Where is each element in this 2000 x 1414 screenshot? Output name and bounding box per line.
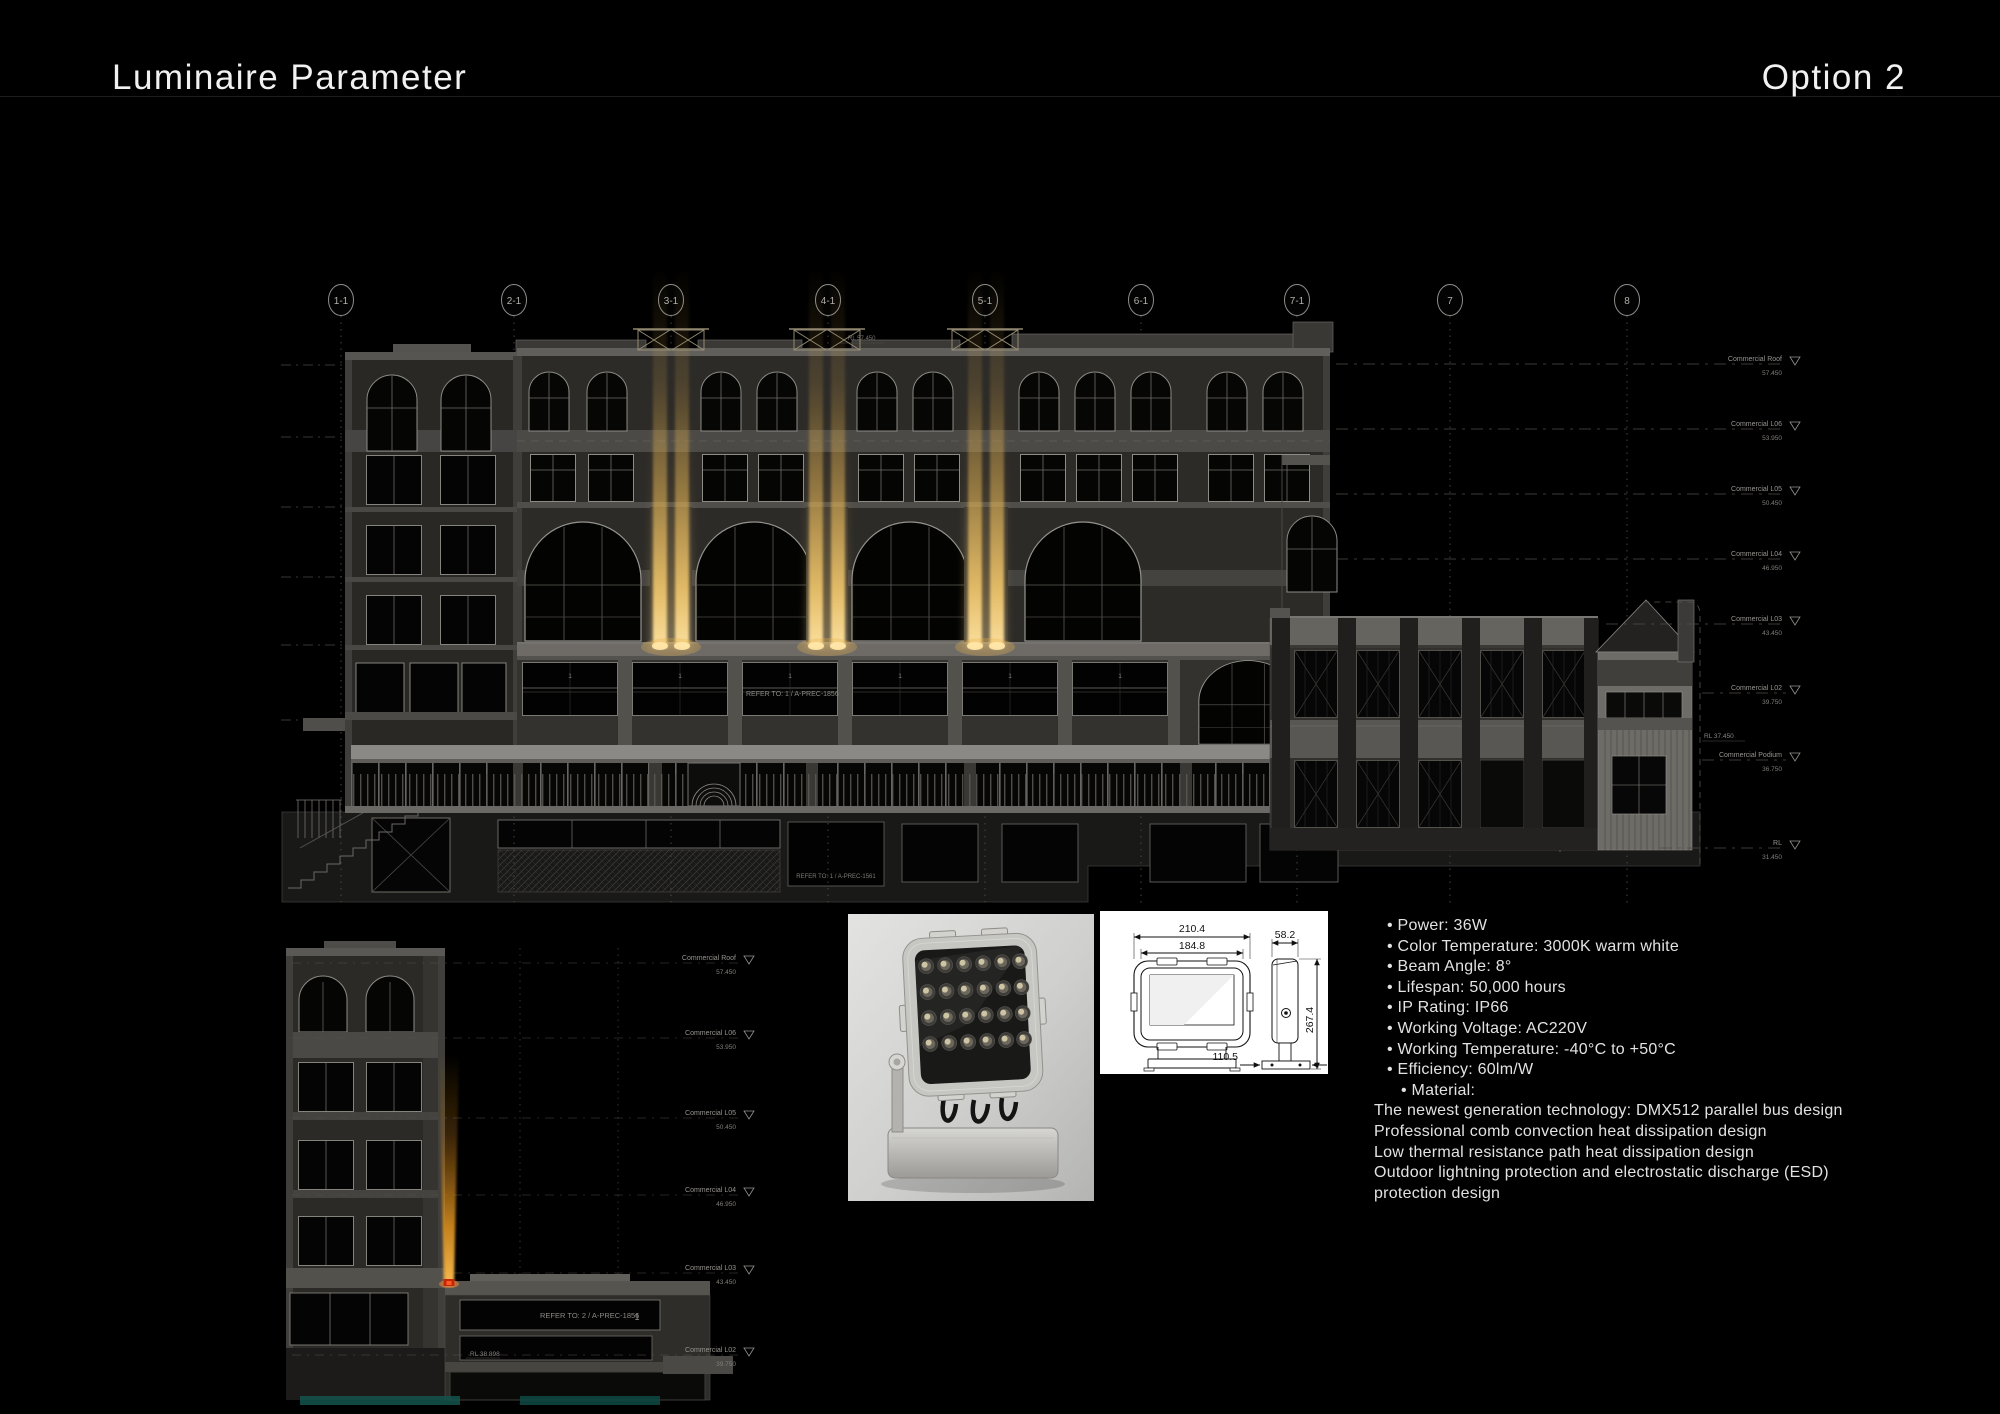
section-elevation: Commercial Roof Commercial L06 Commercia… [286,941,754,1405]
type-tag: 1 [568,673,572,680]
spec-note-dmx: The newest generation technology: DMX512… [1374,1101,1860,1122]
level-rl: 46.950 [716,1201,736,1208]
level-label: Commercial L02 [1731,685,1782,692]
dim-inner-width: 184.8 [1179,940,1205,952]
spec-note-esd: Outdoor lightning protection and electro… [1374,1163,1860,1184]
spec-efficiency: • Efficiency: 60lm/W [1374,1060,1860,1081]
level-label: Commercial L06 [1731,421,1782,428]
level-rl: 43.450 [716,1279,736,1286]
annex-rl-note: RL 38.898 [470,1351,500,1358]
dim-height: 267.4 [1304,1007,1316,1033]
level-label: RL [1773,840,1782,847]
level-rl: 50.450 [716,1124,736,1131]
level-label: Commercial Roof [682,955,736,962]
level-rl: 53.950 [1762,435,1782,442]
type-tag: 1 [788,673,792,680]
spec-color-temperature: • Color Temperature: 3000K warm white [1374,937,1860,958]
spec-note-esd-wrap: protection design [1374,1184,1860,1205]
spec-list: • Power: 36W • Color Temperature: 3000K … [1374,916,1860,1204]
level-rl: 50.450 [1762,500,1782,507]
luminaire-photo [848,914,1094,1201]
level-rl: 53.950 [716,1044,736,1051]
rooftop-frames [633,329,1023,350]
level-label: Commercial Roof [1728,356,1782,363]
spec-material: • Material: [1374,1081,1860,1102]
type-tag: 1 [1118,673,1122,680]
base-refer-note: REFER TO: 1 / A-PREC-1561 [796,874,876,880]
level-label: Commercial L04 [685,1187,736,1194]
floodlight-head [895,926,1050,1102]
level-label: Commercial Podium [1719,752,1782,759]
grid-bubble-label: 8 [1624,296,1630,307]
corner-house [1596,600,1700,864]
dim-side-width: 58.2 [1275,929,1296,941]
level-label: Commercial L03 [685,1265,736,1272]
grid-bubble-label: 7 [1447,296,1453,307]
grid-bubble-label: 7-1 [1290,296,1305,307]
roof-rl-note: RL 57.450 [848,336,876,342]
spec-ip-rating: • IP Rating: IP66 [1374,998,1860,1019]
level-label: Commercial L02 [685,1347,736,1354]
level-label: Commercial L05 [1731,486,1782,493]
level-rl: 39.750 [1762,699,1782,706]
level-rl: 57.450 [1762,370,1782,377]
grid-bubbles: 1-1 2-1 3-1 4-1 5-1 6-1 7-1 7 8 [329,285,1640,316]
level-rl: 57.450 [716,969,736,976]
level-label: Commercial L03 [1731,616,1782,623]
spec-working-voltage: • Working Voltage: AC220V [1374,1019,1860,1040]
type-tag: 1 [898,673,902,680]
section-refer-note: REFER TO: 2 / A-PREC-1856 [540,1311,639,1320]
type-tag: 1 [1008,673,1012,680]
spec-note-comb: Professional comb convection heat dissip… [1374,1122,1860,1143]
level-rl: 31.450 [1762,854,1782,861]
spec-note-thermal: Low thermal resistance path heat dissipa… [1374,1143,1860,1164]
level-label: Commercial L06 [685,1030,736,1037]
grid-bubble-label: 1-1 [334,296,349,307]
dimension-drawing: 210.4 184.8 58.2 267.4 110.5 [1100,911,1328,1074]
level-rl: 36.750 [1762,766,1782,773]
annex-building [1270,608,1598,850]
spec-power: • Power: 36W [1374,916,1860,937]
podium-refer-note: REFER TO: 1 / A-PREC-1856 [746,691,839,698]
level-label: Commercial L05 [685,1110,736,1117]
level-label: Commercial L04 [1731,551,1782,558]
podium-rl-note: RL 37.450 [1704,733,1734,740]
level-rl: 43.450 [1762,630,1782,637]
level-rl: 39.750 [716,1361,736,1368]
dim-base-width: 110.5 [1213,1051,1239,1063]
type-tag: 1 [678,673,682,680]
dim-outer-width: 210.4 [1179,923,1205,935]
spec-working-temperature: • Working Temperature: -40°C to +50°C [1374,1040,1860,1061]
type-tag: 1 [634,1312,639,1322]
grid-bubble-label: 6-1 [1134,296,1149,307]
level-rl: 46.950 [1762,565,1782,572]
spec-lifespan: • Lifespan: 50,000 hours [1374,978,1860,999]
floodlight-base [888,1128,1058,1178]
grid-bubble-label: 2-1 [507,296,522,307]
spec-beam-angle: • Beam Angle: 8° [1374,957,1860,978]
